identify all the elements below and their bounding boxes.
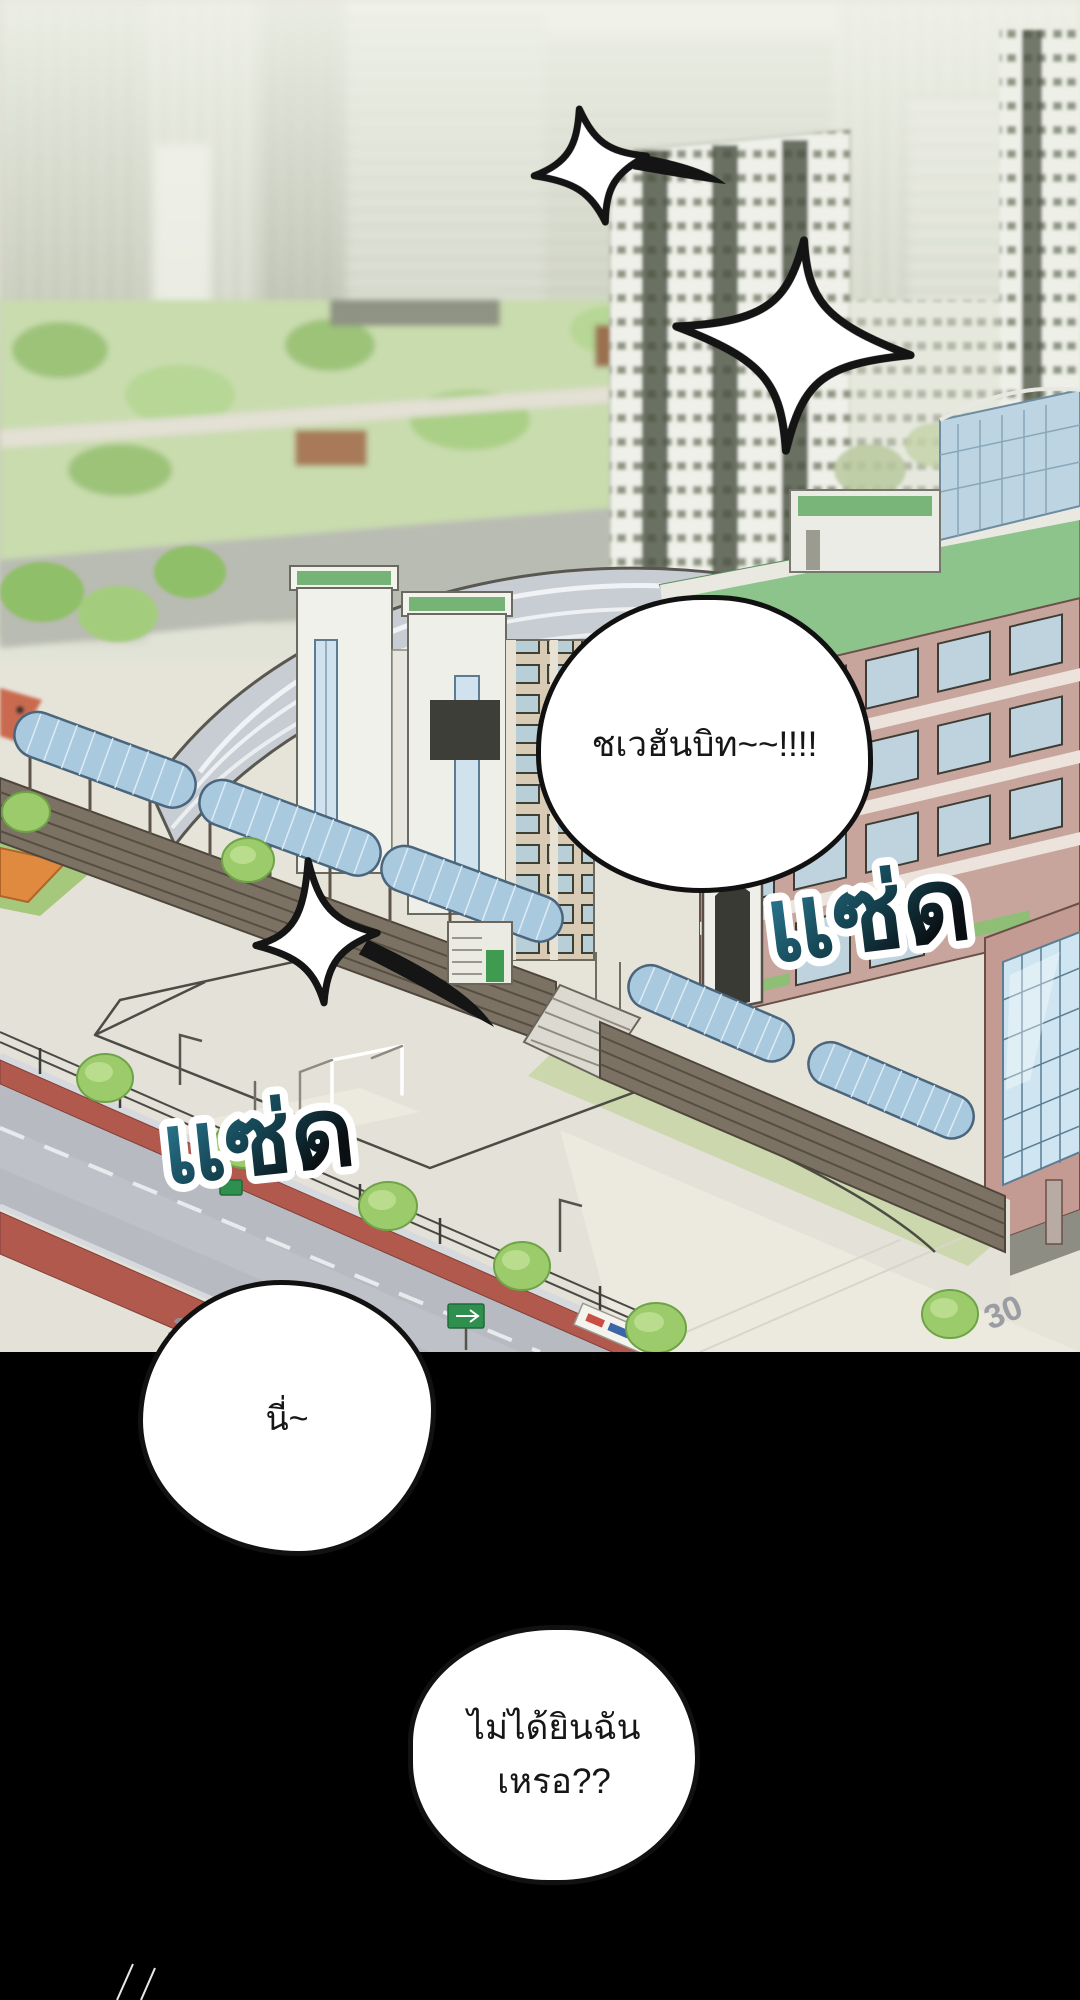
speech-bubble-hey: นี่~ bbox=[138, 1280, 436, 1556]
speech-bubble-hey-text: นี่~ bbox=[265, 1391, 308, 1445]
sfx-whoosh-right-text: แซ่ด bbox=[759, 845, 977, 985]
sketch-slashes bbox=[103, 1962, 173, 2000]
sfx-whoosh-left-text: แซ่ด bbox=[156, 1075, 360, 1205]
speech-bubble-question: ไม่ได้ยินฉัน เหรอ?? bbox=[408, 1625, 700, 1885]
speech-bubble-question-line1: ไม่ได้ยินฉัน bbox=[467, 1701, 640, 1755]
webtoon-panel: 30 30 bbox=[0, 0, 1080, 2000]
sfx-whoosh-left: แซ่ด bbox=[80, 1035, 437, 1250]
speech-bubble-shout-text: ชเวฮันบิท~~!!!! bbox=[592, 717, 818, 772]
speech-bubble-question-line2: เหรอ?? bbox=[497, 1755, 611, 1809]
